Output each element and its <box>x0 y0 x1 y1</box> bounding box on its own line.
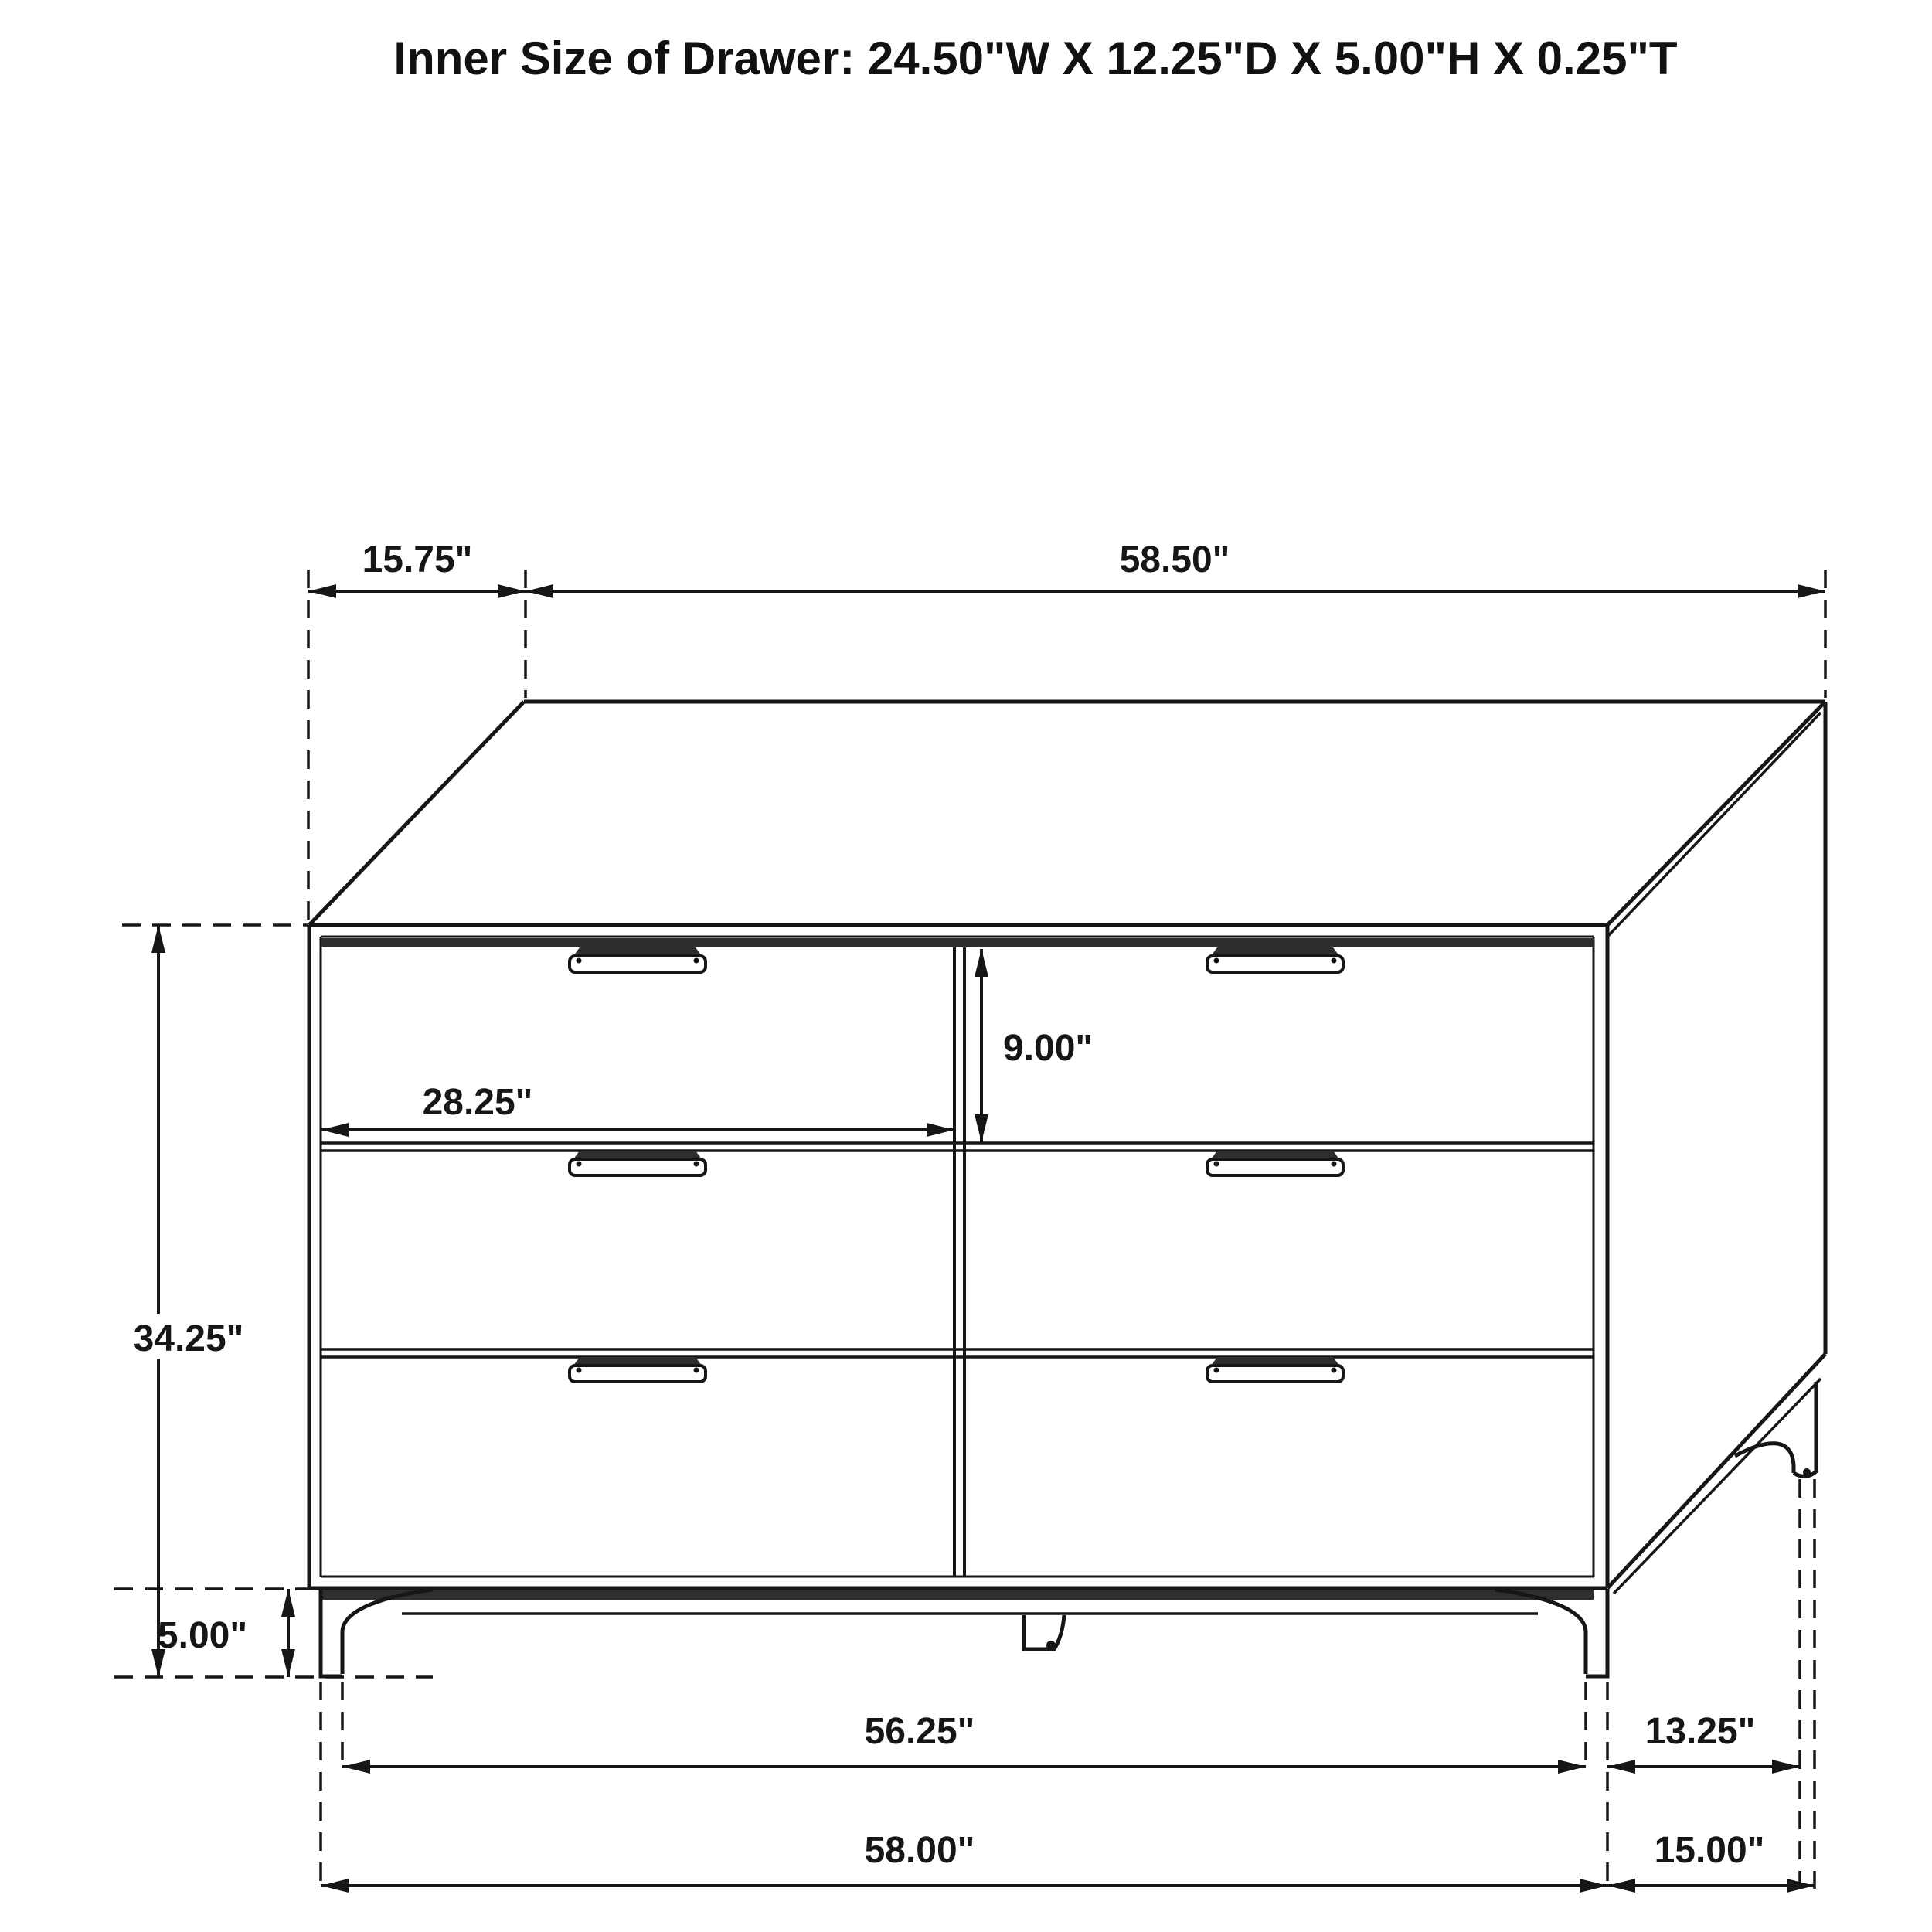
handle-lip <box>1207 956 1343 972</box>
handle-detail-dot <box>694 958 699 964</box>
drawer-handle <box>570 947 706 972</box>
dimension-label: 34.25" <box>134 1318 244 1359</box>
dimension-label: 15.75" <box>362 539 473 580</box>
handle-detail-dot <box>1214 1368 1219 1373</box>
handle-detail-dot <box>1332 958 1337 964</box>
handle-detail-dot <box>577 1368 582 1373</box>
handle-detail-dot <box>694 1162 699 1167</box>
center-foot-shadow-dot <box>1046 1641 1056 1650</box>
handle-lip <box>1207 1159 1343 1175</box>
dimension-label: 28.25" <box>423 1082 533 1123</box>
dimension-label: 58.50" <box>1120 539 1230 580</box>
dresser-dimension-diagram: Inner Size of Drawer: 24.50"W X 12.25"D … <box>0 0 1932 1932</box>
handle-detail-dot <box>1214 1162 1219 1167</box>
drawing-title: Inner Size of Drawer: 24.50"W X 12.25"D … <box>393 32 1677 84</box>
handle-lip <box>570 1159 706 1175</box>
handle-detail-dot <box>577 1162 582 1167</box>
handle-lip <box>570 956 706 972</box>
handle-detail-dot <box>577 958 582 964</box>
drawer-handle <box>1207 1357 1343 1382</box>
drawer-handle <box>1207 947 1343 972</box>
top-panel-shadow-band <box>321 938 1594 947</box>
dimension-label: 5.00" <box>158 1615 247 1656</box>
handle-detail-dot <box>1214 958 1219 964</box>
drawer-handle <box>570 1151 706 1175</box>
bottom-panel-shadow-band <box>321 1590 1594 1600</box>
drawer-handle <box>1207 1151 1343 1175</box>
dimension-label: 58.00" <box>865 1830 975 1871</box>
dimension-label: 13.25" <box>1645 1711 1756 1752</box>
handle-lip <box>1207 1366 1343 1382</box>
dimension-label: 15.00" <box>1655 1830 1765 1871</box>
dimension-label: 9.00" <box>1003 1028 1093 1069</box>
dimension-label: 56.25" <box>865 1711 975 1752</box>
back-foot-shadow-dot <box>1803 1468 1811 1476</box>
drawer-handle <box>570 1357 706 1382</box>
handle-detail-dot <box>694 1368 699 1373</box>
handle-detail-dot <box>1332 1162 1337 1167</box>
handle-lip <box>570 1366 706 1382</box>
handle-detail-dot <box>1332 1368 1337 1373</box>
